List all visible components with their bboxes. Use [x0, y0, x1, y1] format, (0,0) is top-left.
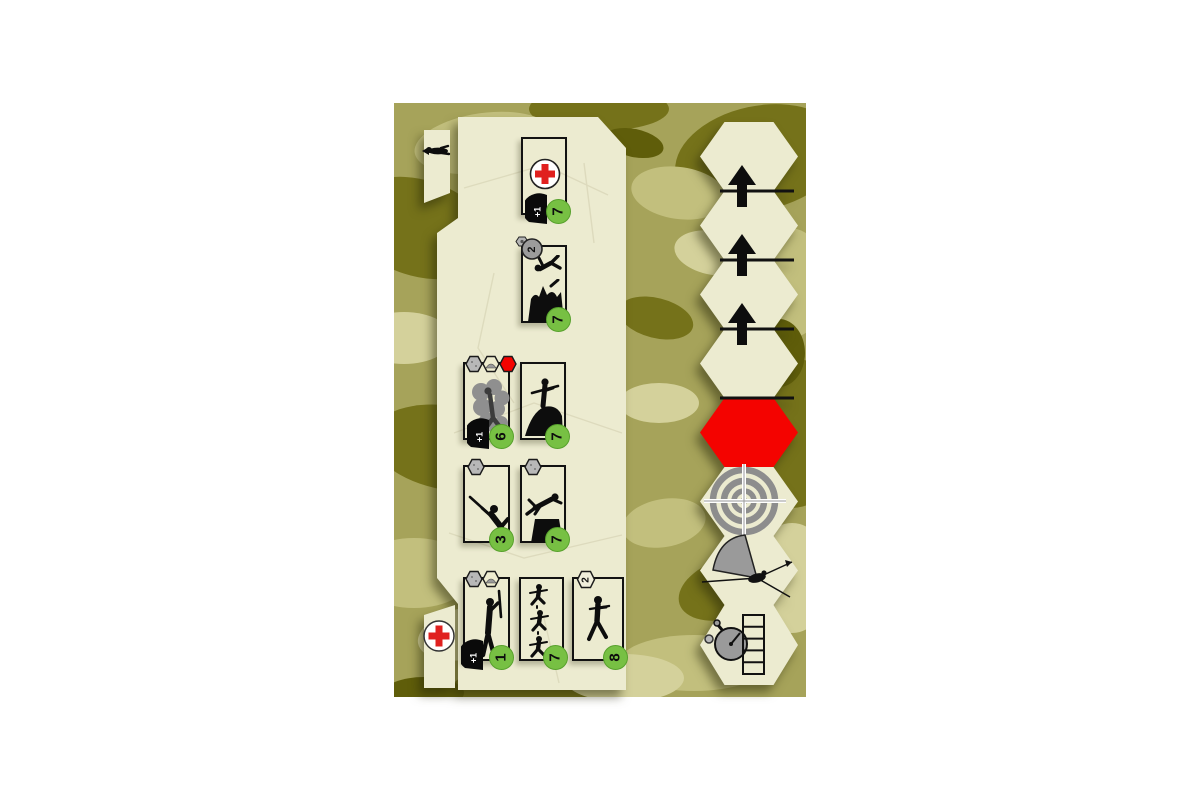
wall-vault-card[interactable]: 7 — [520, 465, 566, 543]
medic-cross-icon — [424, 621, 454, 651]
smoke-card[interactable]: +1 6 — [463, 362, 510, 440]
card-value-badge: 8 — [603, 645, 628, 670]
camo-board: +1 7 2 — [394, 103, 806, 697]
gray-hex-icon — [524, 458, 543, 476]
card-top-markers — [465, 570, 501, 588]
card-value-badge: 7 — [545, 424, 570, 449]
svg-text:+1: +1 — [532, 207, 542, 217]
card-value-badge: 7 — [543, 645, 568, 670]
card-value-badge: 7 — [546, 199, 571, 224]
svg-text:2: 2 — [526, 246, 538, 252]
svg-text:+1: +1 — [468, 653, 478, 663]
mound-hex-icon — [483, 572, 499, 587]
timer-icon: 2 — [515, 235, 545, 263]
crawling-soldier-tab[interactable] — [424, 130, 450, 203]
card-value-badge: 6 — [489, 424, 514, 449]
gray-hex-icon — [466, 572, 482, 587]
squad-march-card[interactable]: 7 — [519, 577, 564, 661]
card-value-badge: 1 — [489, 645, 514, 670]
plain-hex-4[interactable] — [700, 329, 798, 398]
lone-walker-card[interactable]: 2 8 — [572, 577, 624, 661]
value-hex-icon: 2 — [576, 570, 596, 589]
card-value-badge: 7 — [546, 307, 571, 332]
mound-hex-icon — [483, 357, 499, 372]
card-value-badge: 3 — [489, 527, 514, 552]
standing-shooter-card[interactable]: +1 1 — [463, 577, 510, 661]
board-sheet-page: +1 7 2 — [0, 0, 1200, 800]
gray-hex-icon — [467, 458, 486, 476]
red-alert-hex[interactable] — [700, 398, 798, 467]
card-value-badge: 7 — [545, 527, 570, 552]
card-top-markers — [465, 355, 517, 373]
svg-text:+1: +1 — [474, 432, 484, 442]
red-hex-icon — [500, 357, 516, 372]
reclining-shooter-card[interactable]: 3 — [463, 465, 510, 543]
mound-assault-card[interactable]: 7 — [520, 362, 566, 440]
hex-track-column — [690, 112, 808, 697]
medic-cross-icon — [529, 158, 561, 190]
medic-card[interactable]: +1 7 — [521, 137, 567, 215]
svg-text:2: 2 — [581, 577, 592, 583]
gray-hex-icon — [466, 357, 482, 372]
helmet-icon: +1 — [461, 639, 487, 671]
mortar-blast-card[interactable]: 2 7 — [521, 245, 567, 323]
walking-soldier-icon — [582, 595, 618, 649]
